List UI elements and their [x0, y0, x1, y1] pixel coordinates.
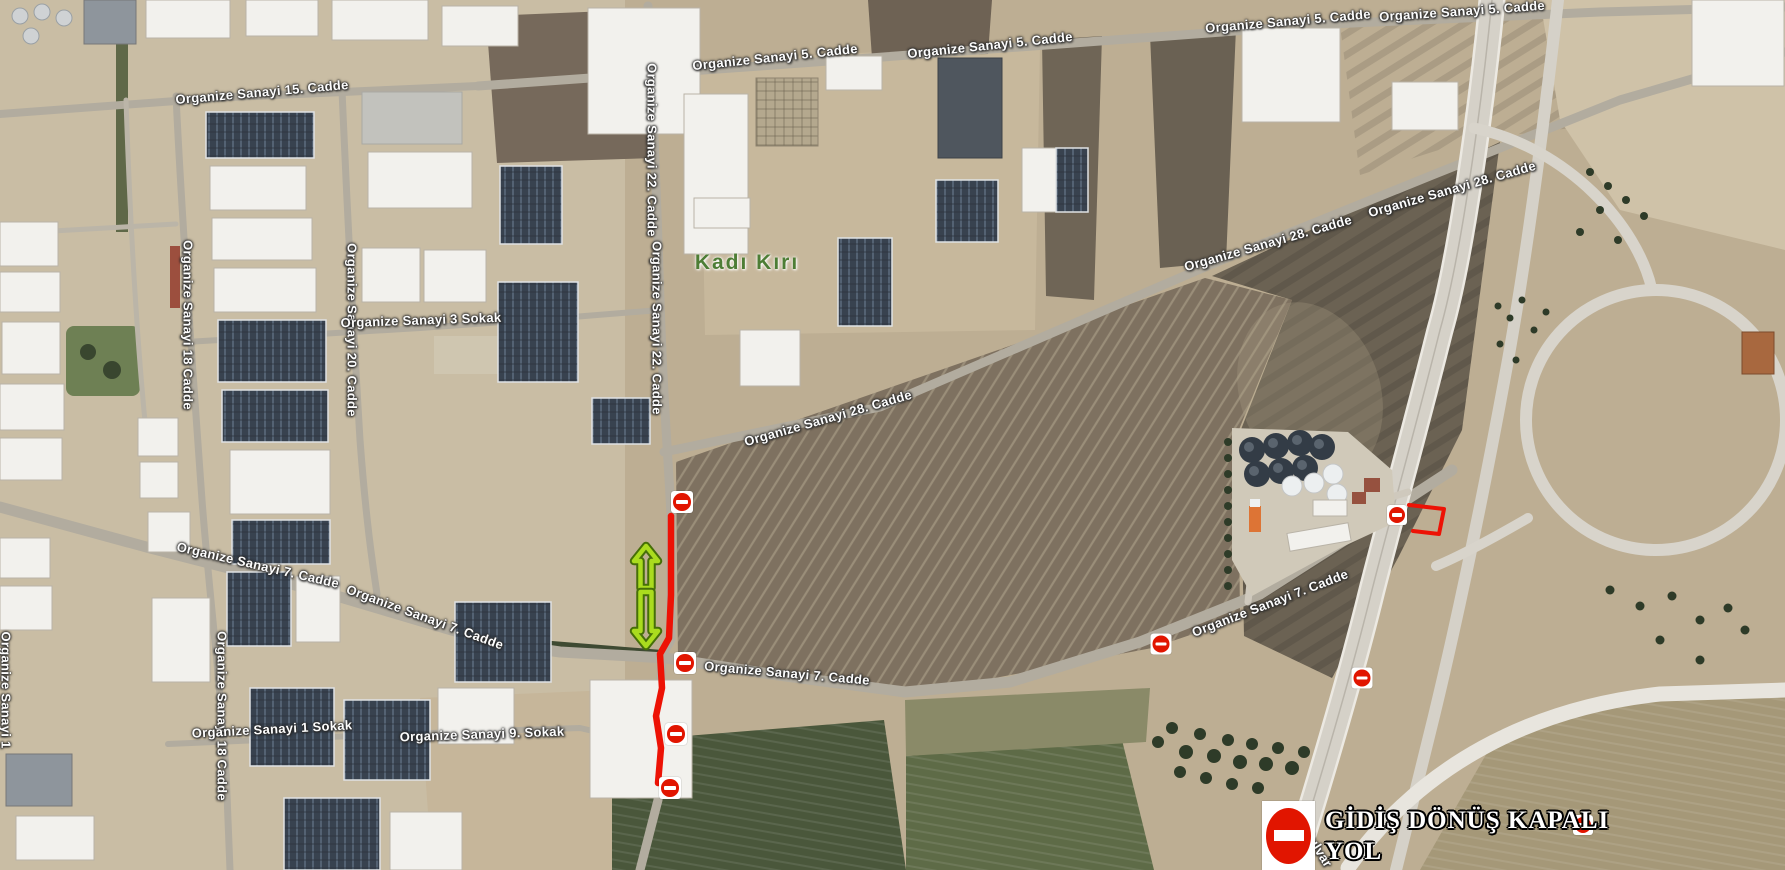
- satellite-basemap[interactable]: [0, 0, 1785, 870]
- no-entry-bar: [1274, 830, 1304, 841]
- legend-caption-line1: GİDİŞ DÖNÜŞ KAPALI: [1325, 805, 1745, 836]
- legend-no-entry-box: [1262, 801, 1315, 870]
- satellite-map-viewport[interactable]: Organize Sanayi 15. CaddeOrganize Sanayi…: [0, 0, 1785, 870]
- legend-caption-line2: YOL: [1325, 836, 1745, 867]
- no-entry-icon: [1266, 808, 1311, 864]
- legend-caption: GİDİŞ DÖNÜŞ KAPALI YOL: [1325, 805, 1745, 867]
